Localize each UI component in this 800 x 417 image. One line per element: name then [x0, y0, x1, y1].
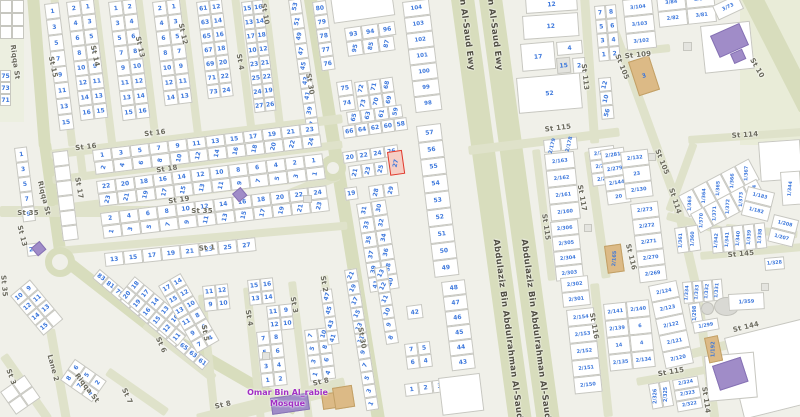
parcel[interactable]: 4: [556, 40, 583, 56]
parcel-number: 20: [270, 142, 279, 152]
parcel-number: 20: [345, 153, 354, 161]
parcel-number: 75: [1, 73, 9, 80]
parcel[interactable]: 52: [516, 72, 583, 113]
parcel[interactable]: 16: [226, 143, 246, 158]
parcel-number: 2: [94, 379, 102, 386]
parcel: [584, 224, 592, 232]
parcel-number: 57: [425, 129, 434, 137]
parcel-number: 15: [129, 253, 138, 261]
parcel-number: 1/359: [738, 298, 754, 305]
parcel[interactable]: [0, 26, 12, 39]
parcel-number: 10: [181, 205, 190, 213]
parcel-number: 4: [277, 361, 282, 368]
parcel[interactable]: 10: [216, 296, 230, 310]
parcel-number: 16: [215, 30, 224, 38]
parcel[interactable]: 3: [16, 161, 31, 177]
parcel-number: 12: [547, 0, 556, 8]
parcel[interactable]: [61, 224, 79, 241]
parcel[interactable]: 4: [113, 157, 133, 172]
parcel-number: 64: [358, 126, 367, 134]
parcel-number: 15: [96, 107, 105, 115]
parcel-number: 4: [129, 18, 134, 25]
parcel-number: 7: [156, 144, 161, 151]
parcel-number: 13: [122, 94, 131, 102]
parcel-number: 17: [259, 208, 268, 218]
parcel-number: 2/165: [611, 251, 618, 267]
parcel-number: 13: [251, 295, 260, 303]
parcel-number: 3: [115, 20, 120, 27]
parcel-number: 85: [367, 41, 376, 51]
parcel[interactable]: 1/359: [728, 292, 765, 311]
parcel[interactable]: 1: [305, 166, 325, 181]
parcel[interactable]: 9: [203, 298, 217, 312]
parcel[interactable]: 18: [245, 141, 265, 156]
parcel[interactable]: 2/134: [631, 350, 656, 369]
parcel-number: 2/322: [682, 401, 698, 409]
parcel[interactable]: 1/344: [780, 171, 800, 206]
parcel-number: 6: [410, 359, 415, 366]
parcel[interactable]: 5: [18, 176, 33, 192]
parcel[interactable]: 15: [58, 113, 75, 131]
parcel[interactable]: 43: [450, 354, 476, 372]
parcel-number: 72: [357, 84, 366, 94]
parcel-number: 2/130: [631, 186, 647, 194]
parcel[interactable]: 71: [0, 94, 11, 106]
parcel-number: 13: [180, 92, 189, 100]
parcel-number: 2/324: [678, 379, 694, 387]
parcel[interactable]: 12: [188, 148, 208, 163]
parcel-number: 19: [347, 189, 356, 197]
parcel-number: 99: [422, 84, 430, 91]
parcel-number: 11: [181, 317, 192, 327]
parcel[interactable]: 14: [207, 146, 227, 161]
parcel[interactable]: 58: [393, 117, 408, 132]
parcel-number: 13: [198, 183, 207, 193]
parcel-number: 77: [321, 46, 330, 54]
parcel-number: 2/302: [567, 280, 583, 288]
parcel-number: 79: [317, 18, 326, 26]
parcel[interactable]: 7: [249, 173, 269, 188]
parcel[interactable]: 96: [378, 21, 397, 37]
parcel-number: 10: [175, 153, 184, 163]
parcel-number: 5: [54, 39, 59, 46]
parcel-number: 2/269: [644, 270, 660, 278]
parcel-number: 1: [601, 51, 606, 58]
parcel[interactable]: 87: [378, 35, 396, 52]
parcel-number: 10: [219, 299, 228, 307]
parcel-number: 3: [21, 166, 26, 173]
parcel: [701, 302, 714, 315]
parcel[interactable]: 2: [94, 160, 114, 175]
parcel-number: 4: [325, 370, 333, 376]
parcel-number: 24: [253, 88, 262, 96]
parcel[interactable]: 8: [269, 329, 283, 344]
parcel-number: 49: [295, 31, 304, 41]
parcel-number: 1/364: [702, 188, 708, 203]
parcel[interactable]: 4: [418, 354, 432, 368]
parcel-number: 2/179: [547, 137, 557, 154]
parcel[interactable]: 12: [522, 12, 580, 40]
parcel[interactable]: 11: [211, 178, 231, 193]
parcel-number: 6: [161, 35, 166, 42]
parcel-number: 7: [409, 346, 414, 353]
parcel[interactable]: 6: [270, 343, 284, 358]
parcel-number: 7: [56, 55, 61, 62]
parcel-number: 13: [175, 306, 186, 316]
parcel-number: 56: [603, 107, 612, 117]
parcel[interactable]: 17: [142, 247, 162, 263]
parcel[interactable]: 16: [135, 103, 151, 120]
parcel-number: 16: [82, 109, 91, 117]
parcel[interactable]: 3: [121, 221, 141, 236]
parcel-number: 8: [157, 158, 165, 164]
parcel-number: 1: [312, 371, 320, 377]
parcel[interactable]: 75: [0, 70, 11, 82]
parcel[interactable]: 24: [301, 134, 321, 149]
parcel[interactable]: 2/150: [573, 375, 603, 395]
parcel[interactable]: 1: [44, 2, 61, 20]
parcel[interactable]: 1: [364, 396, 379, 411]
street-label: St 35: [191, 207, 213, 215]
parcel[interactable]: 49: [433, 258, 460, 278]
parcel-number: 8: [274, 333, 279, 340]
parcel[interactable]: 7: [159, 217, 179, 232]
parcel-number: 1/365: [716, 180, 722, 195]
parcel-number: 59: [391, 107, 400, 117]
parcel-number: 7: [255, 178, 263, 184]
parcel-number: 11: [92, 77, 101, 85]
parcel[interactable]: 22: [260, 69, 273, 84]
parcel[interactable]: 15: [234, 207, 254, 222]
parcel-number: 1/341: [725, 231, 731, 246]
parcel-number: 2/323: [680, 390, 696, 398]
parcel[interactable]: 13: [177, 88, 193, 105]
parcel[interactable]: 74: [338, 95, 356, 112]
parcel-number: 61: [196, 357, 207, 368]
parcel-number: 70: [372, 97, 381, 107]
parcel-number: 42: [410, 308, 419, 316]
parcel-number: 12: [378, 281, 388, 292]
parcel-number: 2/124: [656, 287, 673, 296]
parcel-number: 12: [78, 79, 87, 87]
parcel[interactable]: [12, 0, 24, 13]
parcel-number: 1: [85, 3, 90, 10]
street-label: St 145: [727, 249, 754, 259]
parcel[interactable]: 41: [326, 330, 340, 346]
parcel-number: 78: [319, 32, 328, 40]
parcel[interactable]: 3: [46, 18, 63, 36]
parcel[interactable]: 2/178: [560, 136, 578, 151]
parcel-number: 48: [449, 284, 458, 292]
parcel-number: 41: [328, 333, 337, 343]
parcel-number: 2: [108, 215, 113, 222]
parcel[interactable]: 10: [280, 316, 294, 330]
parcel[interactable]: 19: [136, 187, 156, 202]
parcel[interactable]: 8: [384, 330, 399, 345]
parcel-number: 2/141: [607, 307, 623, 315]
parcel-number: 9: [189, 329, 196, 337]
parcel-number: 19: [267, 130, 276, 138]
parcel[interactable]: 25: [217, 239, 237, 255]
parcel-number: 66: [345, 127, 354, 135]
parcel-number: 13: [60, 102, 69, 110]
parcel[interactable]: 11: [54, 82, 71, 100]
parcel[interactable]: 56: [600, 105, 614, 120]
parcel[interactable]: 13: [56, 97, 73, 115]
parcel[interactable]: 76: [320, 56, 336, 72]
parcel[interactable]: 42: [406, 304, 424, 320]
parcel-number: 2/178: [564, 135, 574, 152]
parcel-number: 80: [315, 4, 324, 12]
parcel-number: 13: [110, 255, 119, 263]
parcel[interactable]: 19: [161, 245, 181, 261]
parcel-number: 2: [71, 5, 76, 12]
parcel-number: 21: [346, 270, 356, 281]
parcel-number: 31: [360, 205, 368, 215]
parcel-number: 6: [323, 357, 331, 363]
parcel[interactable]: 13: [248, 292, 262, 306]
parcel-number: 23: [633, 171, 641, 178]
parcel-number: 24: [307, 137, 316, 147]
parcel[interactable]: 1: [14, 146, 29, 162]
parcel-number: 2/150: [580, 381, 596, 389]
parcel-number: 22: [294, 191, 303, 199]
parcel-number: 21: [351, 167, 360, 177]
parcel-number: 20: [615, 193, 623, 200]
parcel[interactable]: 8: [605, 4, 617, 19]
parcel[interactable]: 1: [102, 224, 122, 239]
parcel[interactable]: 13: [215, 210, 235, 225]
parcel[interactable]: 2/165: [604, 244, 625, 274]
parcel-number: 102: [414, 36, 426, 43]
parcel[interactable]: 3/102: [626, 31, 658, 51]
parcel-number: 49: [441, 264, 450, 272]
parcel[interactable]: 2/82: [658, 9, 689, 28]
parcel[interactable]: 24: [219, 82, 234, 97]
parcel-number: 20: [275, 193, 284, 201]
parcel-number: 74: [342, 99, 351, 107]
parcel-number: 21: [123, 192, 132, 202]
mosque-label-line2: Mosque: [230, 398, 345, 409]
parcel-number: 2/121: [666, 337, 683, 346]
parcel-number: 75: [340, 84, 349, 92]
parcel-number: 4: [73, 20, 78, 27]
parcel-number: 34: [380, 233, 388, 243]
parcel[interactable]: 2: [418, 381, 433, 396]
parcel-number: 11: [217, 181, 226, 191]
parcel-number: 10: [383, 307, 393, 318]
parcel-number: 67: [204, 46, 213, 54]
parcel[interactable]: [0, 13, 12, 26]
parcel[interactable]: 5: [48, 34, 65, 52]
parcel-number: 56: [427, 146, 436, 154]
parcel[interactable]: 15: [556, 57, 571, 74]
parcel[interactable]: 4: [272, 357, 286, 372]
parcel[interactable]: 2/130: [624, 180, 654, 199]
parcel[interactable]: [12, 26, 24, 39]
parcel-number: 1/331: [715, 282, 721, 297]
parcel[interactable]: 3: [287, 169, 307, 184]
parcel-number: 4: [273, 162, 278, 169]
map-canvas[interactable]: Omar Bin Al_rabie Mosque 757371135791113…: [0, 0, 800, 417]
parcel-number: 13: [244, 18, 253, 26]
parcel-number: 8: [194, 312, 201, 320]
parcel[interactable]: 19: [262, 83, 275, 98]
parcel-number: 50: [439, 247, 448, 255]
parcel[interactable]: 1/338: [754, 222, 768, 249]
parcel-number: 4: [159, 20, 164, 27]
parcel[interactable]: 98: [414, 94, 443, 113]
parcel[interactable]: 18: [255, 27, 268, 42]
parcel-number: 100: [418, 68, 430, 75]
parcel-number: 3: [87, 18, 92, 25]
parcel-number: 73: [1, 85, 9, 92]
parcel[interactable]: 19: [272, 203, 292, 218]
highlighted-parcel[interactable]: 27: [387, 150, 405, 176]
parcel[interactable]: 6: [606, 18, 618, 33]
parcel[interactable]: 27: [236, 237, 256, 253]
parcel-number: 53: [433, 196, 442, 204]
parcel-number: 2/153: [574, 330, 590, 338]
parcel-number: 3/83: [694, 0, 707, 3]
parcel[interactable]: 14: [261, 290, 275, 304]
parcel[interactable]: 23: [309, 198, 329, 213]
parcel-number: 15: [243, 4, 252, 12]
parcel-number: 21: [296, 203, 305, 213]
parcel-number: 9: [386, 321, 394, 328]
parcel[interactable]: 20: [264, 139, 284, 154]
parcel-number: 5: [137, 146, 142, 153]
parcel[interactable]: 21: [180, 243, 200, 259]
parcel-number: 10: [186, 299, 197, 309]
parcel[interactable]: 5: [140, 219, 160, 234]
parcel-number: 16: [263, 281, 272, 289]
roundabout: [45, 247, 75, 277]
parcel[interactable]: 1: [404, 382, 419, 397]
parcel[interactable]: 25: [374, 161, 389, 177]
parcel-number: 23: [104, 194, 113, 204]
parcel-number: 3/73: [721, 2, 735, 13]
parcel-number: 3/102: [633, 37, 649, 45]
street-label: St 35: [0, 275, 9, 297]
parcel-number: 18: [257, 196, 266, 204]
parcel[interactable]: 5: [268, 171, 288, 186]
parcel-number: 3: [641, 72, 647, 80]
parcel: [683, 42, 692, 51]
parcel[interactable]: 15: [123, 249, 143, 265]
parcel-number: 1: [265, 376, 270, 383]
parcel-number: 7: [165, 222, 173, 228]
parcel[interactable]: 1/328: [764, 256, 785, 271]
parcel[interactable]: 2/269: [638, 264, 668, 283]
parcel-number: 10: [132, 62, 141, 70]
parcel-number: 87: [382, 39, 391, 49]
parcel-number: 27: [255, 102, 264, 110]
parcel-number: 3/81: [695, 12, 708, 19]
parcel[interactable]: [12, 13, 24, 26]
parcel-number: 2/281: [605, 151, 621, 159]
parcel-number: 1/340: [736, 230, 742, 245]
parcel-number: 13: [94, 92, 103, 100]
parcel[interactable]: 2/179: [543, 138, 561, 153]
parcel-number: 4: [127, 212, 132, 219]
parcel-number: 23: [305, 125, 314, 133]
parcel-number: 53: [291, 2, 300, 12]
parcel[interactable]: 29: [383, 182, 400, 198]
parcel[interactable]: 2: [273, 371, 287, 386]
parcel-number: 9: [208, 301, 213, 308]
parcel[interactable]: 2/301: [562, 290, 591, 308]
parcel-number: 7: [177, 48, 182, 55]
parcel-number: 22: [359, 151, 368, 159]
parcel[interactable]: 7: [19, 191, 34, 207]
parcel-number: 11: [269, 308, 278, 316]
parcel-number: 2/301: [568, 295, 584, 303]
parcel-number: 11: [120, 79, 129, 87]
parcel[interactable]: 19: [344, 186, 359, 201]
parcel[interactable]: [330, 0, 395, 24]
parcel[interactable]: [0, 0, 12, 13]
parcel-number: 5: [23, 181, 28, 188]
parcel-number: 4: [567, 44, 572, 51]
parcel-number: 15: [168, 295, 179, 305]
parcel[interactable]: 17: [520, 41, 556, 72]
parcel-number: 10: [248, 46, 257, 54]
parcel-number: 2/123: [659, 303, 676, 312]
parcel-number: 45: [300, 61, 309, 71]
mosque-label: Omar Bin Al_rabie Mosque: [230, 387, 345, 409]
parcel[interactable]: 21: [117, 189, 137, 204]
parcel[interactable]: 21: [259, 55, 272, 70]
parcel-number: 16: [138, 107, 147, 115]
parcel[interactable]: 23: [98, 192, 118, 207]
parcel-number: 47: [451, 299, 460, 307]
parcel[interactable]: 12: [598, 77, 612, 92]
parcel-number: 96: [382, 25, 391, 33]
parcel-number: 19: [142, 190, 151, 200]
parcel[interactable]: 9: [177, 214, 197, 229]
street-label: St 115: [544, 122, 571, 133]
parcel[interactable]: 10: [599, 91, 613, 106]
parcel[interactable]: 15: [93, 103, 109, 120]
parcel-number: 1/338: [758, 228, 764, 243]
parcel-number: 1/208: [777, 220, 793, 229]
parcel-number: 43: [458, 358, 467, 366]
parcel-number: 2/161: [555, 191, 571, 199]
parcel-number: 8: [65, 375, 73, 382]
parcel-number: 8: [236, 166, 241, 173]
parcel-number: 11: [205, 288, 214, 296]
parcel-number: 1: [100, 151, 105, 158]
parcel-number: 19: [348, 283, 358, 294]
parcel-number: 1/328: [767, 260, 782, 266]
parcel[interactable]: 17: [253, 205, 273, 220]
parcel[interactable]: 13: [192, 180, 212, 195]
parcel-number: 5: [364, 375, 372, 382]
parcel[interactable]: 26: [264, 97, 277, 112]
parcel[interactable]: 6: [132, 155, 152, 170]
parcel-number: 4: [611, 36, 616, 43]
parcel[interactable]: 73: [0, 82, 11, 94]
parcel-number: 9: [236, 180, 244, 186]
parcel[interactable]: 2/135: [608, 352, 633, 371]
parcel[interactable]: 12: [257, 41, 270, 56]
parcel-number: 27: [242, 241, 251, 249]
parcel[interactable]: 22: [283, 137, 303, 152]
parcel-number: 73: [359, 99, 368, 109]
parcel[interactable]: 13: [104, 251, 124, 267]
parcel[interactable]: 4: [607, 32, 619, 47]
